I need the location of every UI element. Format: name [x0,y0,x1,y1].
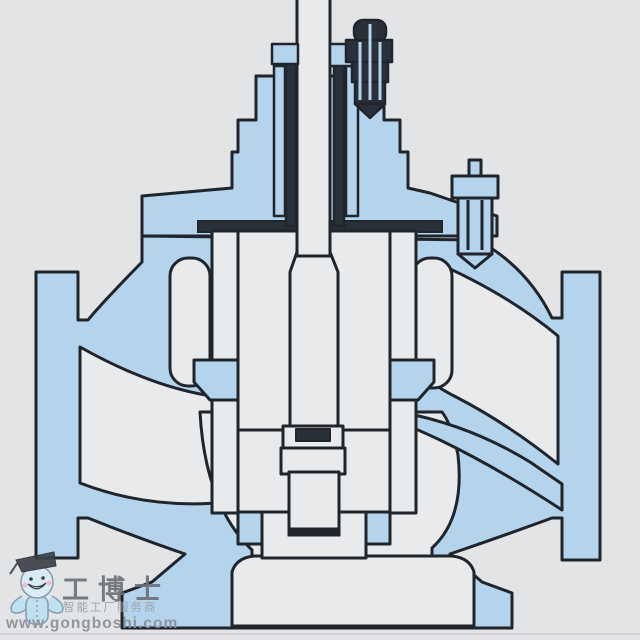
bottom-cover-plate [232,556,474,626]
side-stud-fitting [452,160,498,268]
right-seat-retainer-foot [366,512,390,544]
plug-skirt [289,472,339,532]
mascot-cheek-right [47,581,52,586]
valve-stem [297,0,330,256]
mascot-eye-left [29,577,33,581]
plug-base-seal [288,528,340,536]
mascot-cap-tassel [10,562,18,574]
stem-taper [290,252,338,430]
screenshot-canvas: 工博士 智能工厂服务商 www.gongboshi.com [0,0,640,640]
valve-cross-section-diagram [0,0,640,640]
plug-body [281,448,345,474]
side-stud-body [458,198,492,254]
watermark-tagline: 智能工厂服务商 [63,599,263,615]
gland-flange-left [272,44,298,64]
mascot-cheek-left [23,583,28,588]
plug-seal-ring [296,429,330,441]
packing-stud-left [286,48,296,226]
side-stud-nut [452,176,498,198]
left-seat-retainer-foot [238,512,262,544]
bottom-edge-line [0,633,640,635]
watermark-url: www.gongboshi.com [6,615,226,633]
packing-strip-left [274,66,285,216]
watermark-mascot [10,552,63,624]
mascot-eye-right [41,576,45,580]
packing-stud-right [334,48,344,226]
